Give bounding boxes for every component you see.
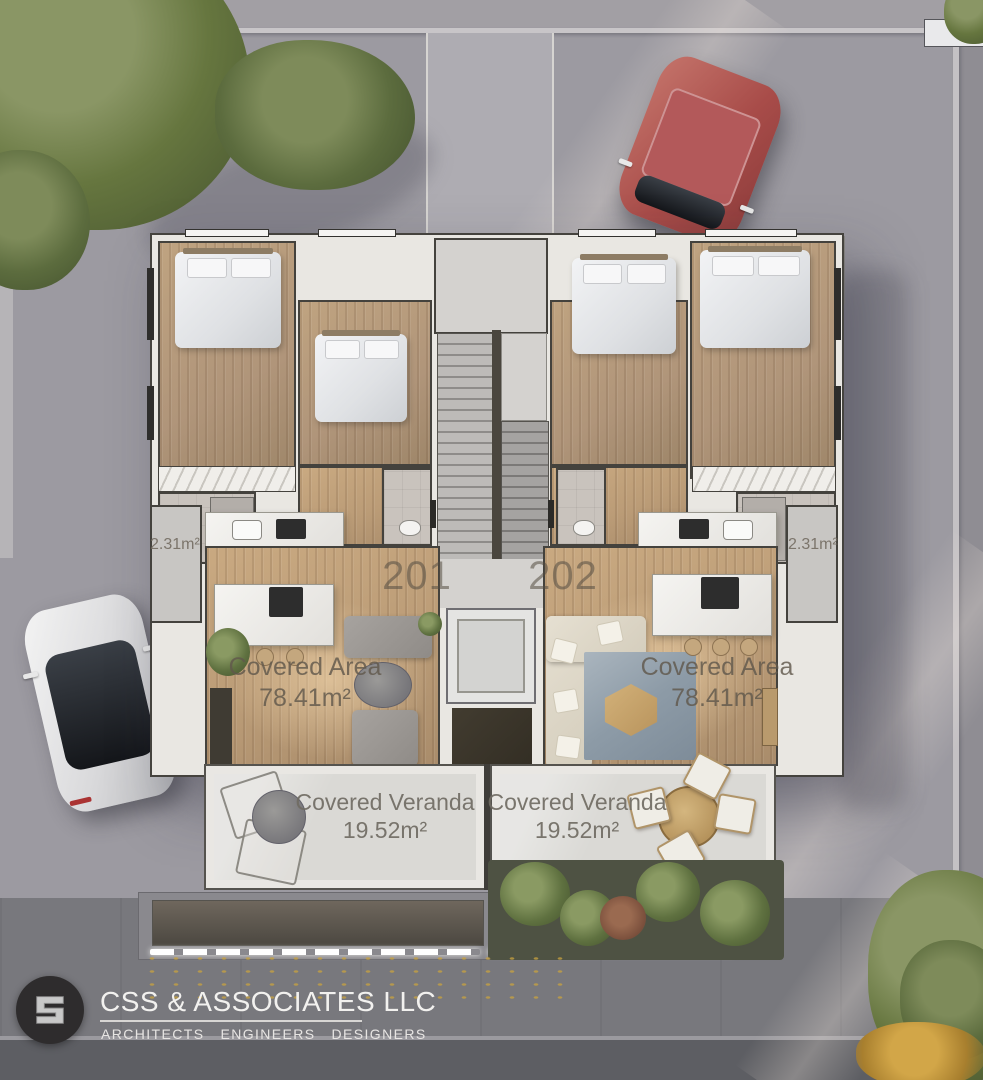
stair-flight-down — [501, 421, 549, 561]
island-cooktop — [701, 577, 739, 609]
armchair-unit201 — [352, 710, 418, 766]
garden-grass-red — [600, 896, 646, 940]
veranda-value: 19.52m² — [290, 816, 480, 844]
balcony-area-label: 2.31m² — [150, 536, 200, 554]
island-cooktop — [269, 587, 303, 617]
bed-pillow — [325, 340, 360, 359]
covered-area-value: 78.41m² — [210, 683, 400, 714]
wc-sink — [573, 520, 595, 536]
veranda-title: Covered Veranda — [290, 788, 480, 816]
covered-area-title: Covered Area — [622, 652, 812, 683]
wardrobe-unit201 — [158, 466, 296, 492]
bed — [572, 258, 676, 354]
covered-area-title: Covered Area — [210, 652, 400, 683]
door-opening — [430, 500, 436, 528]
bed-pillow — [187, 258, 227, 278]
building-cast-shadow — [838, 270, 908, 810]
unit-number-label: 201 — [382, 552, 452, 601]
right-boundary-wall — [959, 28, 983, 940]
kitchen-island-unit202 — [652, 574, 772, 636]
brand-divider-rule — [100, 1020, 362, 1022]
entry-doormat — [452, 708, 532, 766]
bed-headboard — [708, 246, 802, 252]
covered-area-label: Covered Area 78.41m² — [210, 652, 400, 713]
veranda-label: Covered Veranda 19.52m² — [482, 788, 672, 844]
window — [578, 229, 656, 237]
cooktop — [276, 519, 306, 539]
window-side — [834, 268, 841, 340]
window — [185, 229, 269, 237]
stair-divider-wall — [492, 330, 501, 559]
tagline-word: DESIGNERS — [332, 1026, 427, 1042]
stair-upper-landing — [501, 333, 547, 421]
garden-plant — [700, 880, 770, 946]
window-side — [834, 386, 841, 440]
veranda-value: 19.52m² — [482, 816, 672, 844]
right-wall-edge — [953, 28, 959, 940]
covered-area-label: Covered Area 78.41m² — [622, 652, 812, 713]
unit-number-label: 202 — [528, 552, 598, 601]
elevator-cab — [457, 619, 525, 693]
sofa-cushion — [552, 688, 579, 714]
wardrobe-unit202 — [692, 466, 836, 492]
door-opening — [548, 500, 554, 528]
bed-headboard — [183, 248, 273, 254]
wc-unit202 — [556, 468, 606, 546]
bed-headboard — [322, 330, 400, 336]
indoor-plant — [418, 612, 442, 636]
tagline-word: ENGINEERS — [220, 1026, 315, 1042]
cooktop — [679, 519, 709, 539]
company-logo — [16, 976, 84, 1044]
bed — [315, 334, 407, 422]
veranda-label: Covered Veranda 19.52m² — [290, 788, 480, 844]
wc-sink — [399, 520, 421, 536]
kitchen-sink — [232, 520, 262, 540]
stair-flight-up — [437, 333, 494, 561]
bed-pillow — [231, 258, 271, 278]
covered-area-value: 78.41m² — [622, 683, 812, 714]
bed-pillow — [364, 340, 399, 359]
entry-lobby — [434, 238, 548, 334]
sofa-cushion — [555, 734, 582, 759]
veranda-title: Covered Veranda — [482, 788, 672, 816]
tagline-word: ARCHITECTS — [101, 1026, 204, 1042]
window — [318, 229, 396, 237]
tree-canopy — [215, 40, 415, 190]
balcony-unit202 — [786, 505, 838, 623]
site-plan-render: 201 202 Covered Area 78.41m² Covered Are… — [0, 0, 983, 1080]
elevator-shaft — [446, 608, 536, 704]
lightwell-recess — [152, 900, 484, 946]
bed-pillow — [712, 256, 754, 276]
bed-headboard — [580, 254, 668, 260]
kitchen-counter-unit202 — [638, 512, 777, 548]
kitchen-counter-unit201 — [205, 512, 344, 548]
company-name: CSS & ASSOCIATES LLC — [100, 986, 436, 1018]
bed-pillow — [583, 264, 622, 284]
bed-pillow — [758, 256, 800, 276]
window — [705, 229, 797, 237]
company-tagline: ARCHITECTS ENGINEERS DESIGNERS — [101, 1026, 427, 1042]
veranda-chair — [713, 793, 757, 835]
balcony-area-label: 2.31m² — [788, 536, 838, 554]
window-side — [147, 386, 154, 440]
window-side — [147, 268, 154, 340]
kitchen-sink — [723, 520, 753, 540]
autumn-foliage — [856, 1022, 983, 1080]
logo-monogram-icon — [31, 991, 69, 1029]
wc-unit201 — [382, 468, 432, 546]
bed — [175, 252, 281, 348]
balcony-unit201 — [150, 505, 202, 623]
bed-pillow — [627, 264, 666, 284]
bed — [700, 250, 810, 348]
